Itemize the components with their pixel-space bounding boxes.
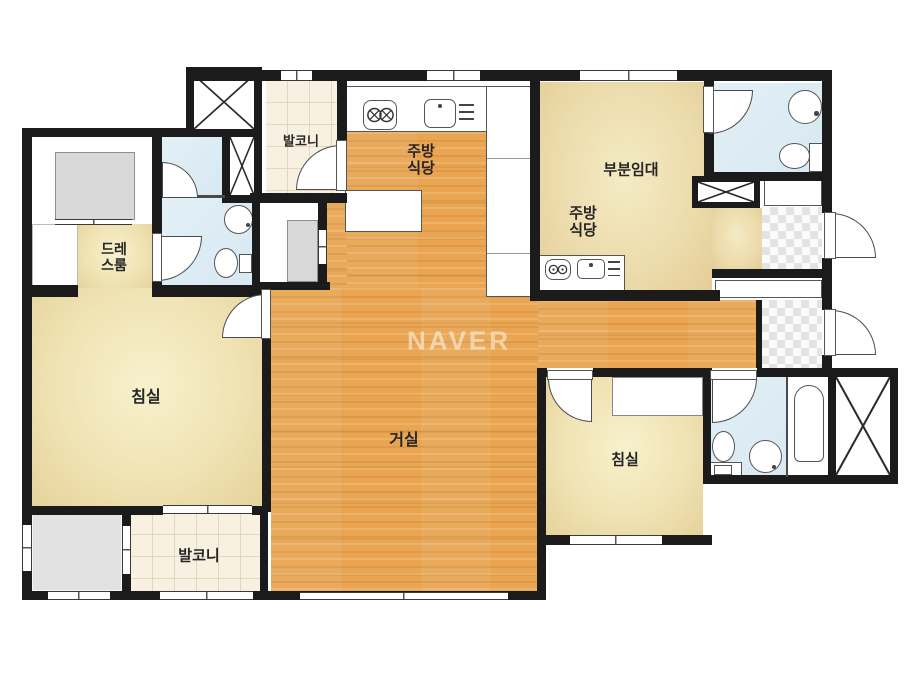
washbasin-icon <box>224 205 253 234</box>
wall <box>22 506 163 515</box>
bedroom-right-closet <box>612 377 703 416</box>
wall <box>593 368 712 377</box>
wall <box>822 180 832 213</box>
toilet-bowl-icon <box>214 248 238 278</box>
wall <box>704 172 832 181</box>
window <box>160 591 253 600</box>
wall <box>260 506 268 600</box>
bathroom2-door-leaf <box>710 370 757 380</box>
window <box>22 525 32 571</box>
window <box>427 70 480 81</box>
wall <box>337 81 347 142</box>
kitchen-tall-cabinet <box>486 86 532 297</box>
kitchen-wood-floor-strip <box>327 200 347 302</box>
wall <box>22 285 78 297</box>
wall <box>822 278 832 310</box>
balcony-bottom-label: 발코니 <box>178 547 219 564</box>
dress-room-label: 드레 스룸 <box>101 241 127 273</box>
elevator-x-icon <box>836 377 890 475</box>
wall <box>318 203 327 230</box>
rental-shoe-cabinet <box>764 178 822 206</box>
wall <box>537 368 546 600</box>
wall <box>822 258 832 270</box>
rental-washbasin-icon <box>788 90 822 124</box>
living-room-window <box>300 592 508 600</box>
wall <box>704 132 714 173</box>
main-entrance-door-arc <box>831 310 876 355</box>
wall <box>530 74 540 300</box>
rental-sink-icon <box>577 259 605 279</box>
bathtub-icon <box>794 385 824 462</box>
balcony-door-leaf <box>336 140 347 191</box>
cabinet-divider-line <box>487 253 531 254</box>
shaft-x-icon <box>194 75 254 129</box>
rental-bathroom-door-leaf <box>703 86 714 133</box>
bathroom1-door-leaf <box>152 233 162 282</box>
main-entrance-door-leaf <box>824 309 836 356</box>
wall <box>537 368 547 377</box>
bedroom-left-label: 침실 <box>131 389 160 407</box>
bathroom2-toilet-tank-icon <box>707 462 742 476</box>
storage-cabinet <box>287 220 318 282</box>
rental-kitchen-dining-label: 주방 식당 <box>569 205 597 240</box>
dress-room-closet <box>32 224 78 288</box>
stove-icon <box>363 100 397 130</box>
wall <box>822 81 832 180</box>
wall <box>252 198 260 290</box>
rental-duct-x-icon <box>698 182 754 202</box>
wall <box>262 338 271 512</box>
rental-toilet-bowl-icon <box>779 143 810 169</box>
bedroom-right-door-leaf <box>547 370 593 380</box>
closet-cabinet <box>55 152 135 220</box>
toilet-tank-icon <box>239 254 252 273</box>
cabinet-divider-line <box>487 158 531 159</box>
rental-entrance-door-arc <box>831 213 876 258</box>
bathroom2-washbasin-icon <box>749 440 782 473</box>
bathroom2-toilet-bowl-icon <box>712 431 735 462</box>
naver-watermark: NAVER <box>407 326 511 357</box>
rental-dish-rack-icon <box>608 261 620 276</box>
rental-entrance-door-leaf <box>824 212 836 259</box>
wall <box>122 513 131 526</box>
rental-stove-icon <box>545 259 571 280</box>
partial-rental-entry-floor <box>712 208 762 270</box>
rental-toilet-tank-icon <box>809 143 823 172</box>
closet-sliding-door <box>55 219 132 225</box>
wall <box>662 535 712 545</box>
kitchen-island <box>345 190 422 232</box>
wall <box>250 193 347 203</box>
duct-x-icon <box>230 137 254 195</box>
window <box>580 70 677 81</box>
kitchen-dining-label: 주방 식당 <box>407 143 435 178</box>
wall <box>703 377 711 481</box>
window <box>281 70 312 81</box>
wall <box>22 128 192 137</box>
utility-door <box>122 526 131 574</box>
main-entrance-vestibule <box>761 300 822 368</box>
hallway-floor <box>538 300 756 368</box>
wall <box>537 535 570 545</box>
utility-room-floor <box>32 513 122 591</box>
dish-rack-icon <box>459 104 474 121</box>
wall <box>122 574 131 600</box>
tub-partition-line <box>786 377 788 477</box>
floor-plan: 발코니 주방 식당 부분임대 주방 식당 드레 스룸 침실 거실 침실 발코니 … <box>0 0 923 676</box>
storage-opening <box>318 230 327 264</box>
wall <box>530 290 720 301</box>
wall <box>757 368 832 377</box>
main-shoe-cabinet <box>715 280 822 298</box>
partial-rental-label: 부분임대 <box>603 161 658 178</box>
bedroom-right-label: 침실 <box>611 451 639 468</box>
sink-icon <box>424 99 456 128</box>
bedroom-left-door-leaf <box>261 289 271 339</box>
wall <box>712 269 832 278</box>
wall <box>152 128 162 233</box>
window <box>48 591 110 600</box>
balcony-top-label: 발코니 <box>283 135 319 150</box>
balcony-sliding-door <box>163 505 252 514</box>
living-room-label: 거실 <box>389 432 418 450</box>
wall <box>703 475 898 484</box>
wall <box>756 300 762 368</box>
rental-entrance-vestibule <box>762 207 822 269</box>
wall <box>822 355 832 368</box>
bedroom-right-window <box>570 535 662 545</box>
